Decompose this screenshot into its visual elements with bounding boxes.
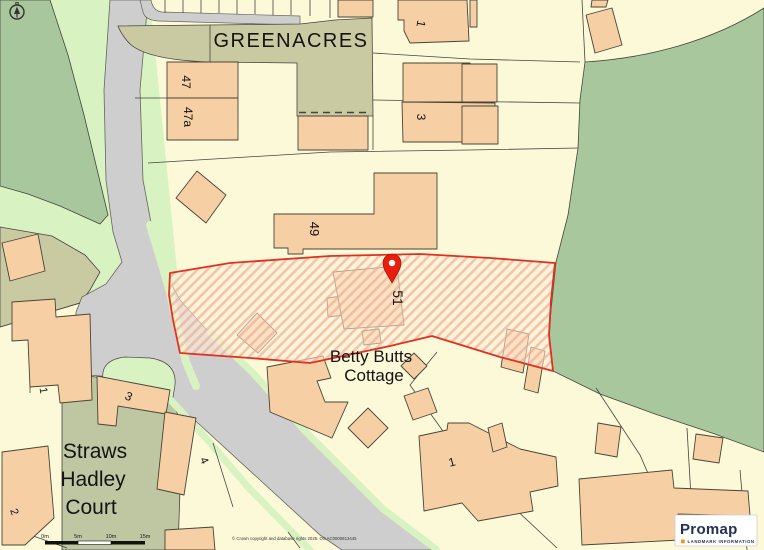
scale-0-label: 0m — [41, 534, 49, 540]
building — [165, 527, 215, 550]
building — [462, 106, 498, 144]
plot-3-label: 3 — [414, 114, 428, 121]
cottage-label-line1: Betty Butts — [330, 347, 412, 366]
promap-tagline: LANDMARK INFORMATION — [688, 539, 755, 544]
scale-15-label: 15m — [140, 534, 151, 540]
building — [338, 0, 373, 17]
promap-logo: Promap LANDMARK INFORMATION — [675, 515, 757, 546]
plot-49-label: 49 — [307, 222, 322, 236]
court-label-line1: Straws — [63, 440, 127, 463]
plot-47-label: 47 — [179, 75, 193, 89]
building — [462, 64, 497, 102]
court-label-line2: Hadley — [60, 468, 126, 491]
court-label-line3: Court — [65, 496, 117, 519]
scale-10-label: 10m — [106, 534, 117, 540]
building-top-1 — [398, 0, 469, 43]
street-label: GREENACRES — [213, 30, 368, 52]
scale-5-label: 5m — [74, 534, 82, 540]
promap-accent-square — [681, 540, 685, 544]
copyright-text: © Crown copyright and database rights 20… — [232, 536, 357, 541]
promap-wordmark: Promap — [680, 521, 738, 538]
plot-47a-label: 47a — [181, 107, 195, 127]
building-47 — [167, 62, 238, 140]
building — [591, 0, 608, 7]
building — [595, 423, 621, 457]
building — [470, 0, 477, 27]
plot-51-label: 51 — [390, 290, 406, 306]
building — [693, 434, 723, 463]
building — [298, 116, 368, 150]
map-viewport[interactable]: GREENACRES 47 47a 1 3 49 51 Betty Butts … — [0, 0, 764, 550]
map-canvas[interactable]: GREENACRES 47 47a 1 3 49 51 Betty Butts … — [0, 0, 764, 550]
cottage-label-line2: Cottage — [344, 366, 404, 385]
